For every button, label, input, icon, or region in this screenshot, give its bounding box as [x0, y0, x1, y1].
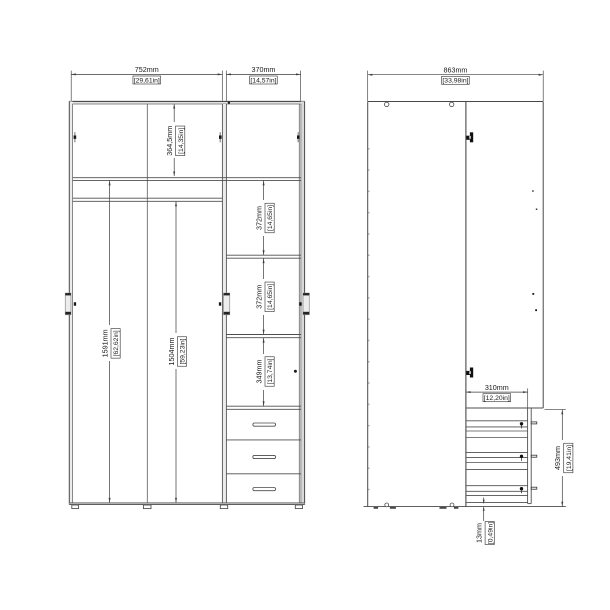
svg-text:[33,98in]: [33,98in] [442, 78, 468, 85]
svg-text:[12,20in]: [12,20in] [484, 395, 510, 402]
svg-text:13mm: 13mm [475, 523, 484, 543]
svg-text:[62,62in]: [62,62in] [113, 330, 120, 356]
svg-text:1591mm: 1591mm [100, 329, 109, 357]
svg-text:752mm: 752mm [135, 65, 159, 74]
svg-text:[14,57in]: [14,57in] [250, 77, 276, 84]
svg-text:370mm: 370mm [251, 65, 275, 74]
svg-text:[29,61in]: [29,61in] [134, 77, 160, 84]
svg-text:[14,65in]: [14,65in] [267, 284, 274, 310]
svg-text:349mm: 349mm [254, 360, 263, 384]
svg-text:372mm: 372mm [254, 285, 263, 309]
svg-text:1504mm: 1504mm [167, 338, 176, 366]
svg-text:372mm: 372mm [254, 206, 263, 230]
svg-text:364,5mm: 364,5mm [165, 126, 174, 156]
svg-text:[19,41in]: [19,41in] [566, 445, 573, 471]
svg-text:[14,65in]: [14,65in] [267, 205, 274, 231]
svg-text:310mm: 310mm [485, 383, 509, 392]
svg-text:[59,23in]: [59,23in] [180, 338, 187, 364]
svg-text:[13,74in]: [13,74in] [267, 358, 274, 384]
svg-text:493mm: 493mm [553, 446, 562, 470]
svg-text:[14,35in]: [14,35in] [178, 128, 185, 154]
svg-text:[0,49in]: [0,49in] [487, 522, 494, 544]
svg-text:863mm: 863mm [443, 65, 467, 74]
